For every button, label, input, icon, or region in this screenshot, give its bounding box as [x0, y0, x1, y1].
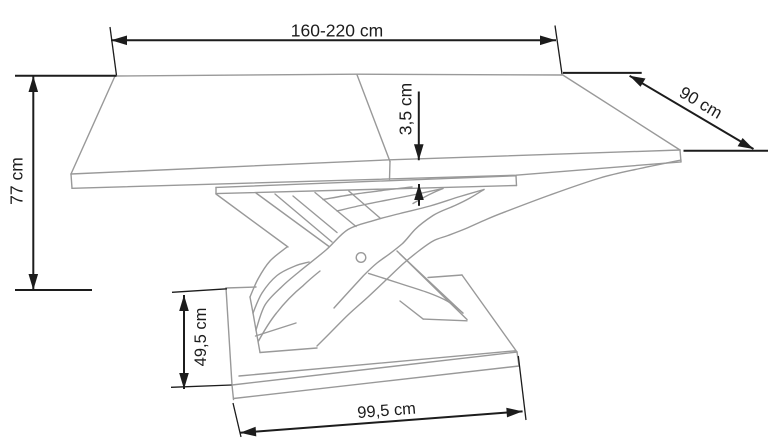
svg-text:160-220 cm: 160-220 cm: [291, 20, 383, 40]
svg-text:77 cm: 77 cm: [7, 157, 27, 205]
svg-text:3,5 cm: 3,5 cm: [396, 83, 416, 136]
svg-text:49,5 cm: 49,5 cm: [192, 308, 210, 367]
